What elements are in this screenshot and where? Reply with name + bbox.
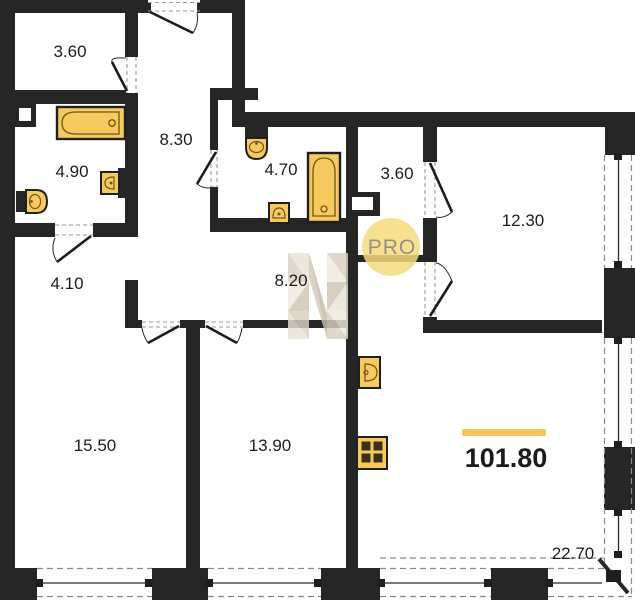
bathtub-icon bbox=[308, 153, 340, 222]
bathtub-icon bbox=[57, 107, 125, 139]
room-area-label: 3.60 bbox=[380, 164, 413, 183]
room-area-label: 8.30 bbox=[159, 130, 192, 149]
toilet-icon bbox=[245, 126, 268, 159]
door-swing bbox=[206, 326, 237, 343]
door-swing bbox=[150, 12, 193, 33]
room-area-label: 8.20 bbox=[274, 271, 307, 290]
room-area-label: 4.10 bbox=[50, 274, 83, 293]
door-swing bbox=[112, 62, 127, 91]
room-area-label: 15.50 bbox=[74, 436, 117, 455]
toilet-icon bbox=[16, 190, 47, 213]
room-area-label: 4.70 bbox=[264, 160, 297, 179]
pro-watermark: PRO bbox=[362, 218, 420, 276]
room-area-label: 3.60 bbox=[53, 42, 86, 61]
room-area-label: 13.90 bbox=[249, 436, 292, 455]
door-swing bbox=[148, 326, 179, 343]
door-swing bbox=[197, 152, 216, 184]
total-area-highlight-bar bbox=[462, 429, 546, 436]
kitchen-sink-icon bbox=[352, 356, 380, 389]
total-area-label: 101.80 bbox=[465, 443, 548, 473]
door-swing bbox=[430, 163, 452, 212]
door-swing bbox=[430, 281, 452, 316]
room-area-label: 4.90 bbox=[55, 162, 88, 181]
door-swing bbox=[57, 236, 91, 262]
floor-plan: PRO 3.60 4.90 8.30 4.70 3.60 12.30 4.10 … bbox=[0, 0, 635, 600]
pro-watermark-label: PRO bbox=[368, 236, 417, 259]
room-area-label: 12.30 bbox=[502, 211, 545, 230]
sink-icon bbox=[101, 168, 126, 198]
sink-icon bbox=[269, 203, 289, 223]
corner-glazing bbox=[599, 559, 628, 593]
terrace-area-label: 22.70 bbox=[552, 544, 595, 563]
stove-icon bbox=[357, 437, 387, 469]
floor-plan-viewer: PRO 3.60 4.90 8.30 4.70 3.60 12.30 4.10 … bbox=[0, 0, 635, 600]
